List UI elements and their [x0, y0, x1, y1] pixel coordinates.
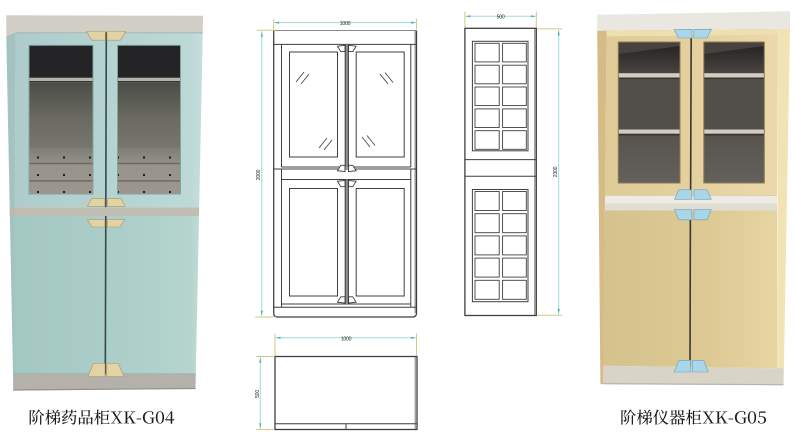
svg-text:500: 500 [497, 15, 505, 21]
svg-text:2300: 2300 [553, 166, 559, 177]
svg-text:1000: 1000 [340, 21, 351, 27]
svg-text:500: 500 [255, 390, 261, 398]
svg-text:2000: 2000 [256, 169, 262, 180]
svg-text:1000: 1000 [341, 336, 352, 342]
